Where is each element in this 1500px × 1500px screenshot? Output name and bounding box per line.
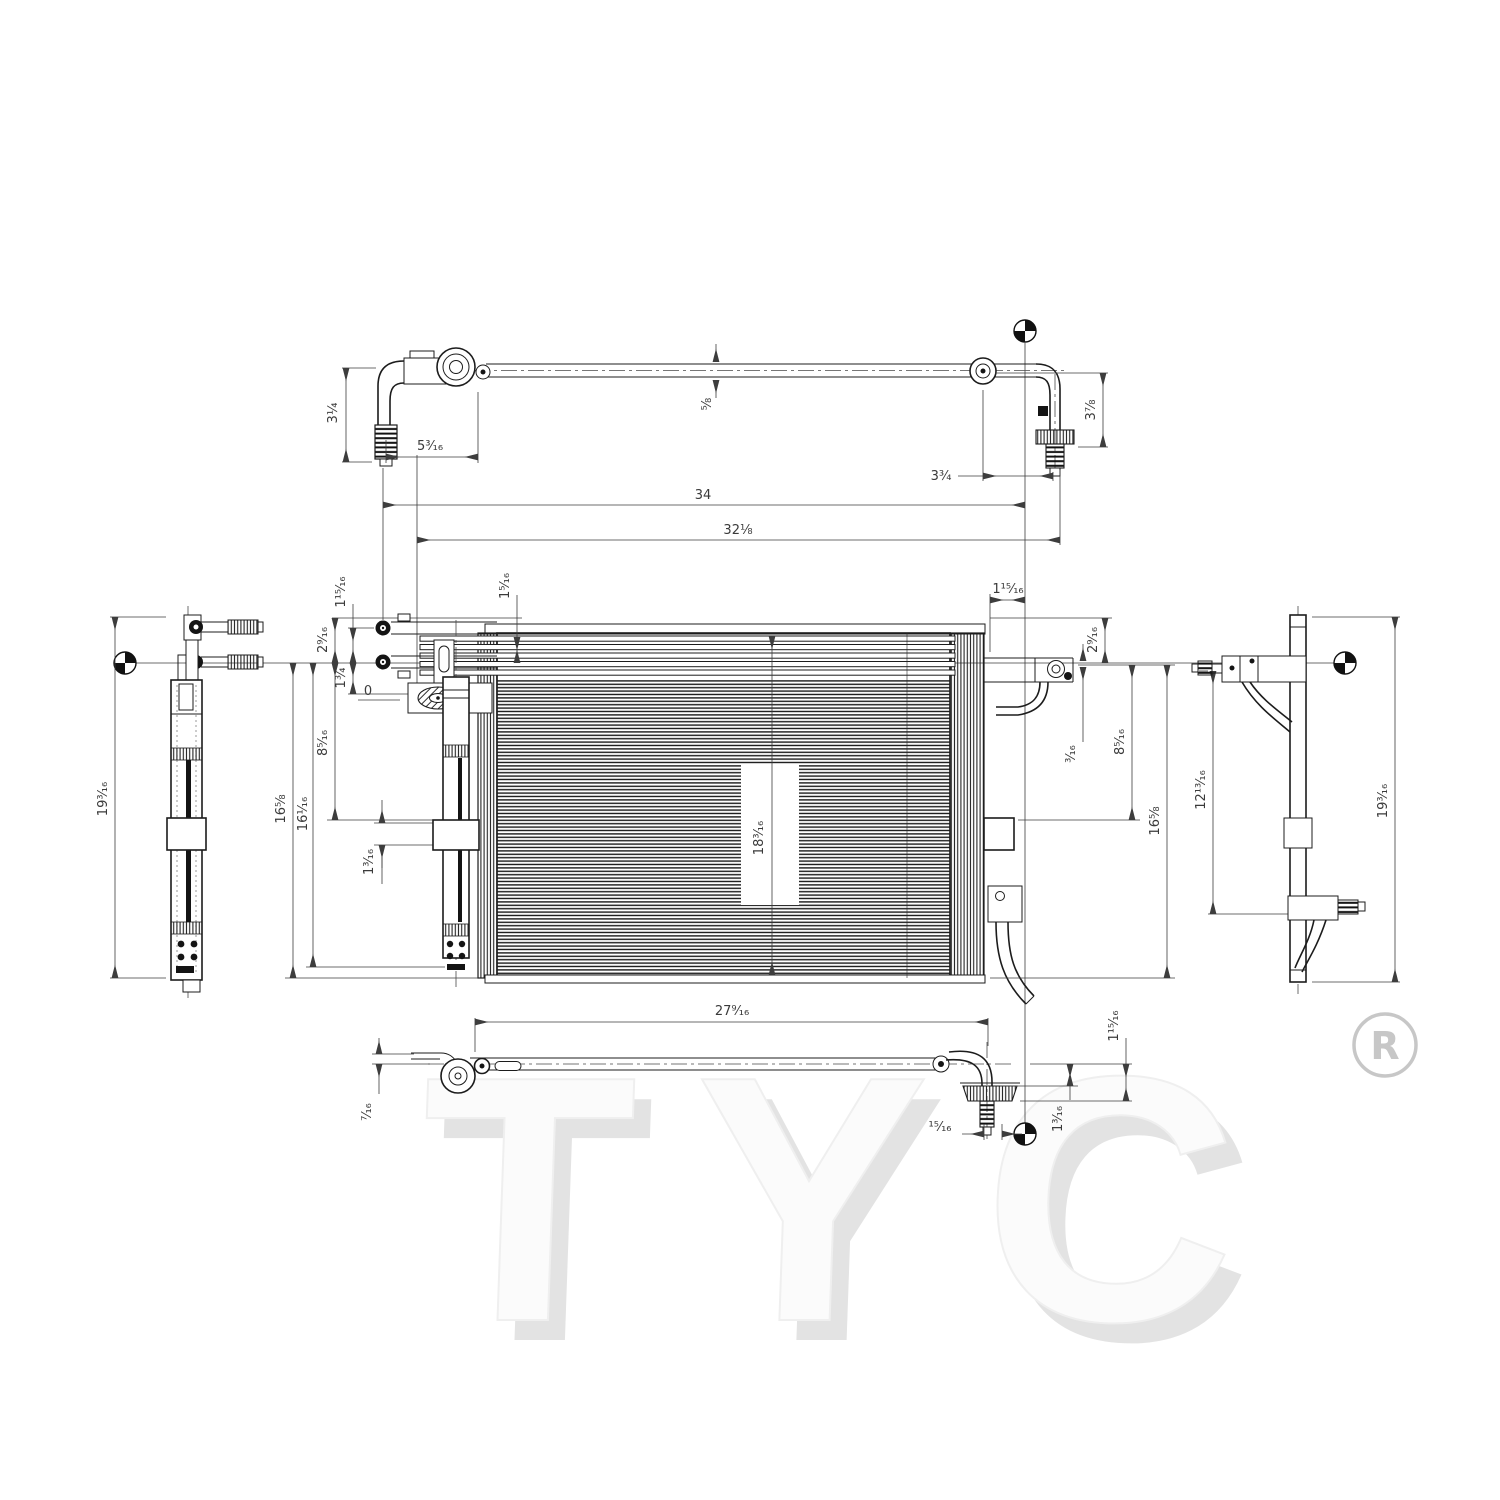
- drawing-canvas: 3¼ 5³⁄₁₆ ⅝ 3⅞ 3¾ 34 32⅛: [0, 0, 1500, 1500]
- dim-top-left-height: 3¼: [326, 402, 341, 423]
- dim-right-center-to-mount: 8⁵⁄₁₆: [1113, 729, 1128, 755]
- datum-target-top: [1014, 320, 1036, 342]
- dim-top-right-height: 3⅞: [1084, 399, 1099, 420]
- dim-left-center-to-mount: 8⁵⁄₁₆: [316, 730, 331, 756]
- dim-secondary-width: 32⅛: [723, 523, 753, 538]
- dim-zero-ref: 0: [364, 684, 372, 699]
- dim-left-center-to-bottom: 16⅝: [274, 794, 289, 824]
- dim-left-top-to-center: 2⁹⁄₁₆: [316, 627, 331, 653]
- dim-bottom-hose-drop: 1³⁄₁₆: [1051, 1106, 1066, 1132]
- registered-letter: R: [1370, 1024, 1399, 1068]
- dim-bottom-valve-offset: ¹⁵⁄₁₆: [928, 1120, 951, 1135]
- front-view-condenser: 18³⁄₁₆: [376, 573, 1074, 1004]
- dim-bottom-right-height: 1¹⁵⁄₁₆: [1107, 1010, 1122, 1041]
- left-side-view: 19³⁄₁₆: [96, 606, 263, 998]
- dim-bottom-bracket-offset: ⁷⁄₁₆: [360, 1103, 375, 1121]
- dim-right-bracket-span: 12¹³⁄₁₆: [1194, 770, 1209, 810]
- dim-right-center-to-bottom: 16⅝: [1148, 806, 1163, 836]
- dim-top-right-run: 3¾: [931, 469, 952, 484]
- condenser-technical-drawing: TYC TYC: [0, 0, 1500, 1500]
- dim-overall-width: 34: [695, 488, 712, 503]
- dim-left-stud-to-center: 1¹⁵⁄₁₆: [334, 576, 349, 607]
- dim-right-center-offset: ³⁄₁₆: [1064, 745, 1079, 763]
- right-side-view: [1192, 606, 1365, 994]
- dim-core-top-to-center: 1⁵⁄₁₆: [498, 573, 513, 599]
- datum-target-left: [114, 652, 136, 674]
- dim-right-overall-height: 19³⁄₁₆: [1376, 784, 1391, 818]
- registered-trademark-icon: R: [1354, 1014, 1416, 1076]
- dim-tube-od: ⅝: [700, 397, 715, 410]
- bottom-view-dimensions: ⁷⁄₁₆ 27⁹⁄₁₆ 1¹⁵⁄₁₆ 1³⁄₁₆ ¹⁵⁄₁₆: [360, 1004, 1132, 1140]
- datum-target-right: [1334, 652, 1356, 674]
- dim-core-width: 27⁹⁄₁₆: [715, 1004, 749, 1019]
- dim-left-center-to-zero: 1¾: [334, 667, 349, 688]
- dim-left-overall-height: 19³⁄₁₆: [96, 782, 111, 816]
- dim-top-left-run: 5³⁄₁₆: [417, 439, 443, 454]
- dim-left-center-to-core-bottom: 16¹⁄₁₆: [296, 797, 311, 831]
- top-view-pipe-assembly: [375, 320, 1074, 476]
- dim-core-height: 18³⁄₁₆: [752, 821, 767, 855]
- dim-right-stud-to-datum: 1¹⁵⁄₁₆: [992, 582, 1023, 597]
- dim-right-top-to-center: 2⁹⁄₁₆: [1086, 627, 1101, 653]
- dim-left-mount-height: 1³⁄₁₆: [362, 849, 377, 875]
